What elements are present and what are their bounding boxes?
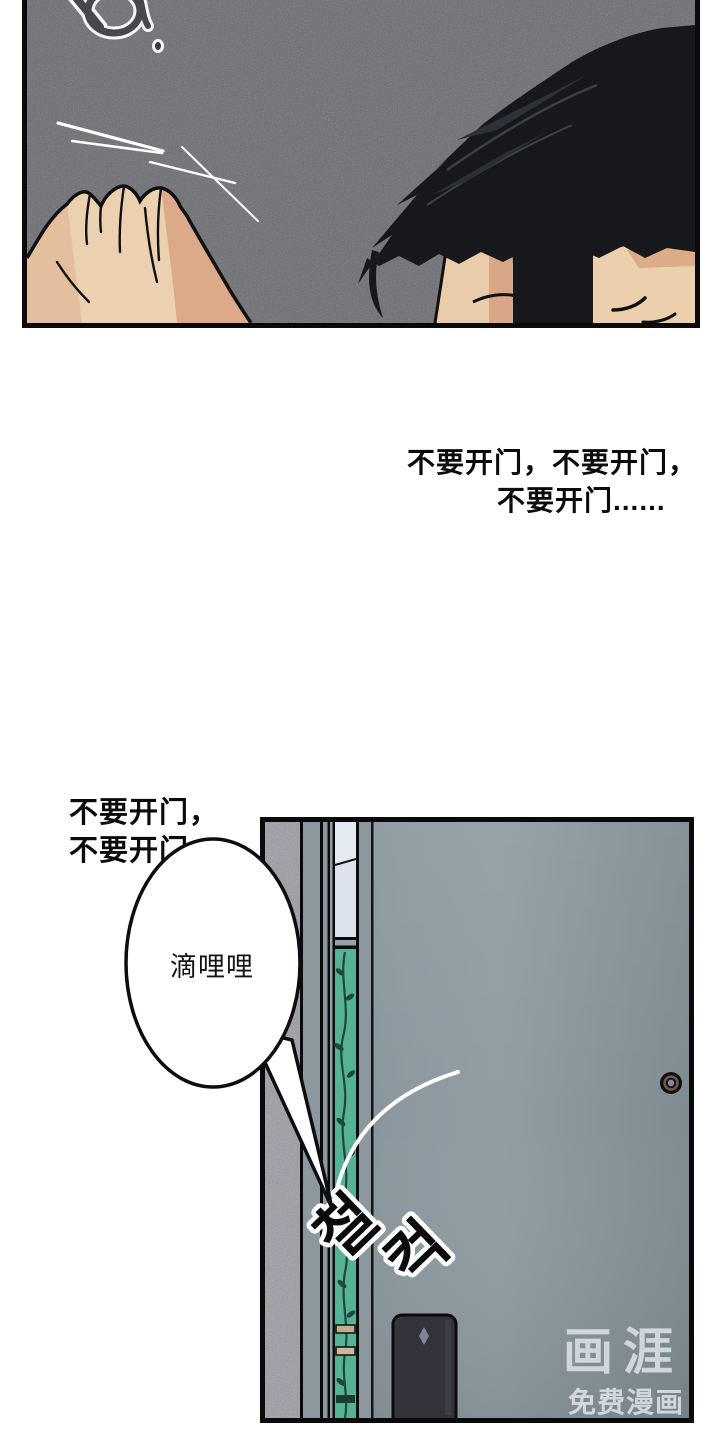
panel-door: 철 컥 画涯 免费漫画 bbox=[260, 817, 694, 1423]
side-window-strip bbox=[335, 822, 356, 949]
watermark-logo: 画涯 bbox=[563, 1312, 683, 1384]
panel-top bbox=[22, 0, 700, 328]
monologue-small-line2: 不要开门， bbox=[69, 837, 219, 866]
door-peephole bbox=[660, 1072, 682, 1094]
monologue-small-line1: 不要开门， bbox=[69, 799, 219, 828]
wall-strip bbox=[265, 822, 300, 1418]
panel-top-art bbox=[27, 0, 695, 323]
speech-bubble-text: 滴哩哩 bbox=[170, 945, 254, 984]
door-keypad bbox=[393, 1315, 456, 1418]
door-edge-lines bbox=[356, 822, 374, 1418]
monologue-main-line2: 不要开门...... bbox=[497, 487, 666, 515]
watermark-tagline: 免费漫画 bbox=[568, 1381, 684, 1421]
monologue-main-line1: 不要开门，不要开门， bbox=[407, 449, 697, 477]
door-frame bbox=[300, 822, 335, 1418]
